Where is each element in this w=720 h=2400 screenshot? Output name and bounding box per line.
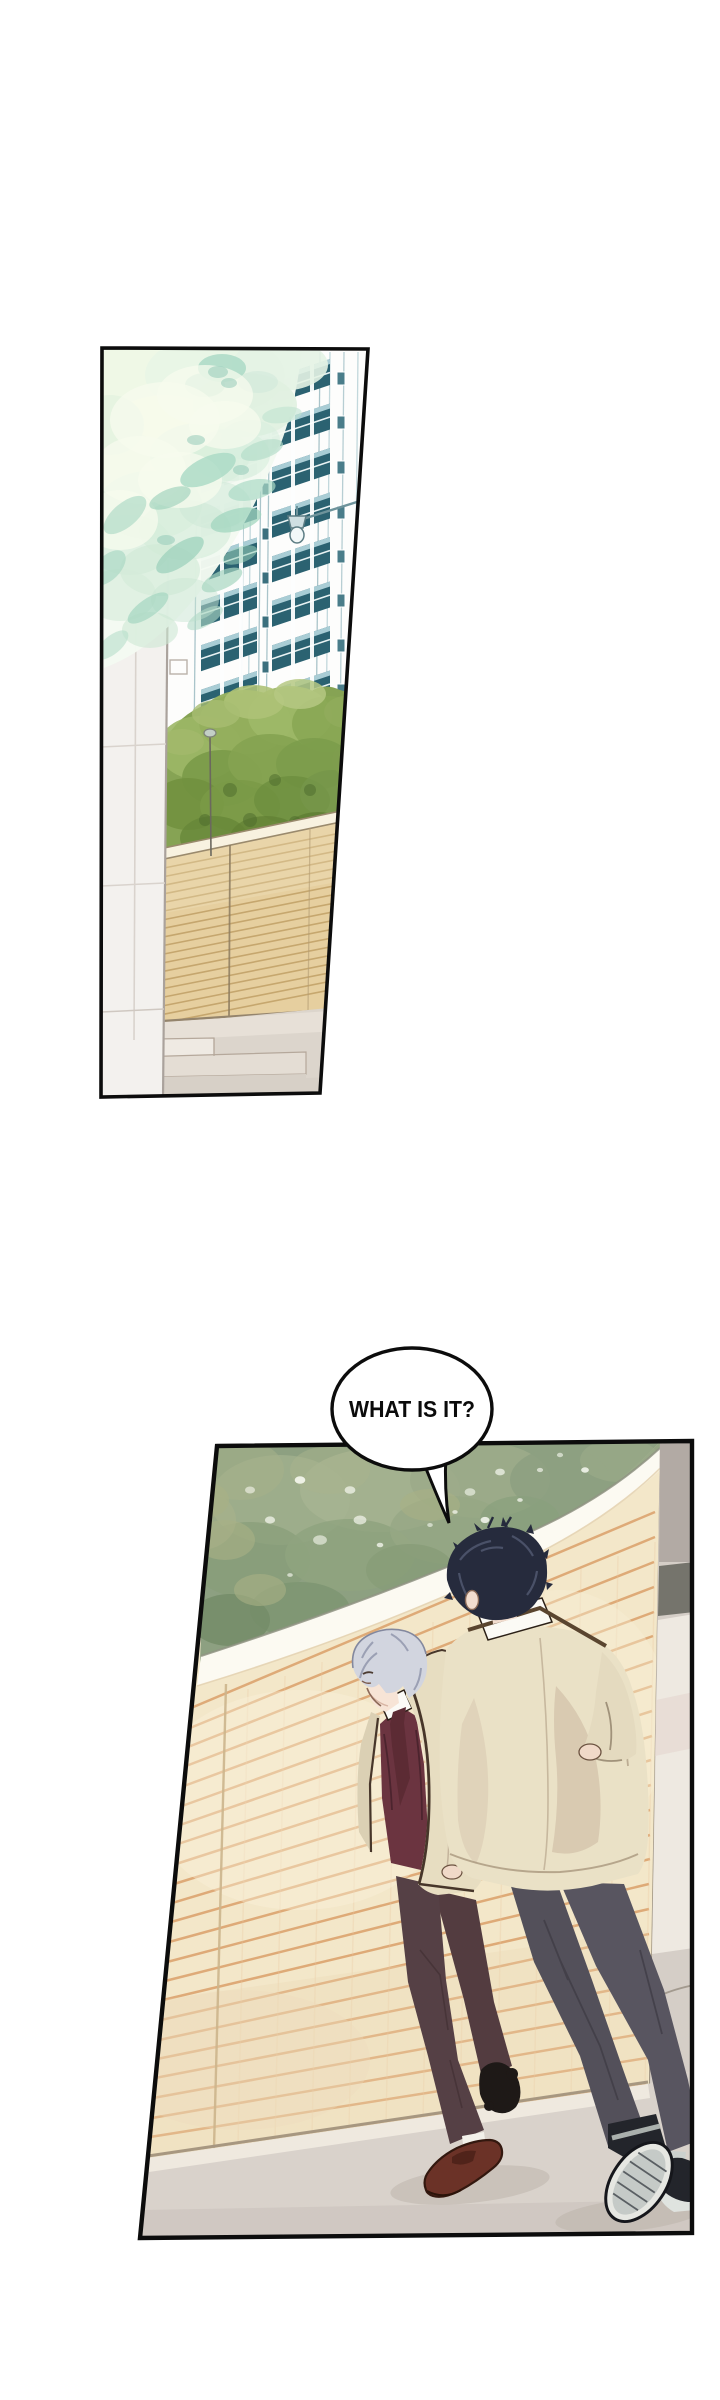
svg-text:WHAT IS IT?: WHAT IS IT? [349, 1396, 475, 1422]
